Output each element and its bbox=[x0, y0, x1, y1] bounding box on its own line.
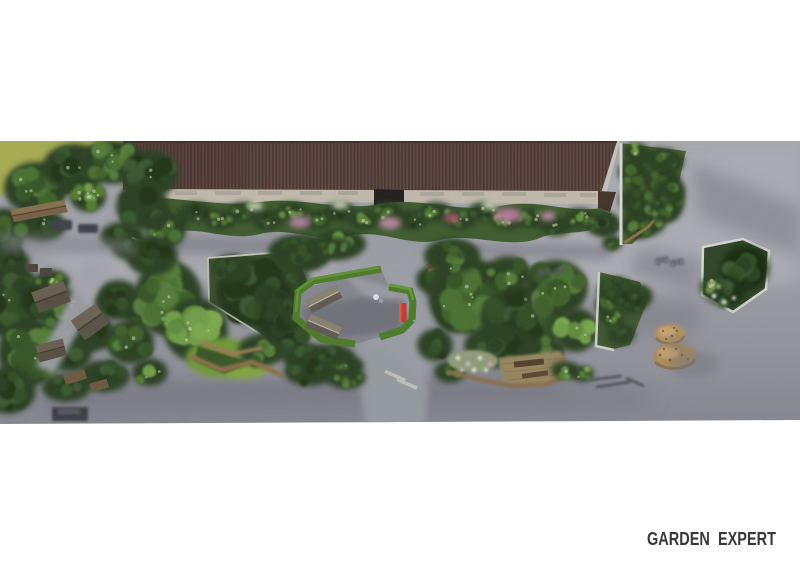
svg-text:GARDEN EXPERT: GARDEN EXPERT bbox=[647, 528, 777, 549]
